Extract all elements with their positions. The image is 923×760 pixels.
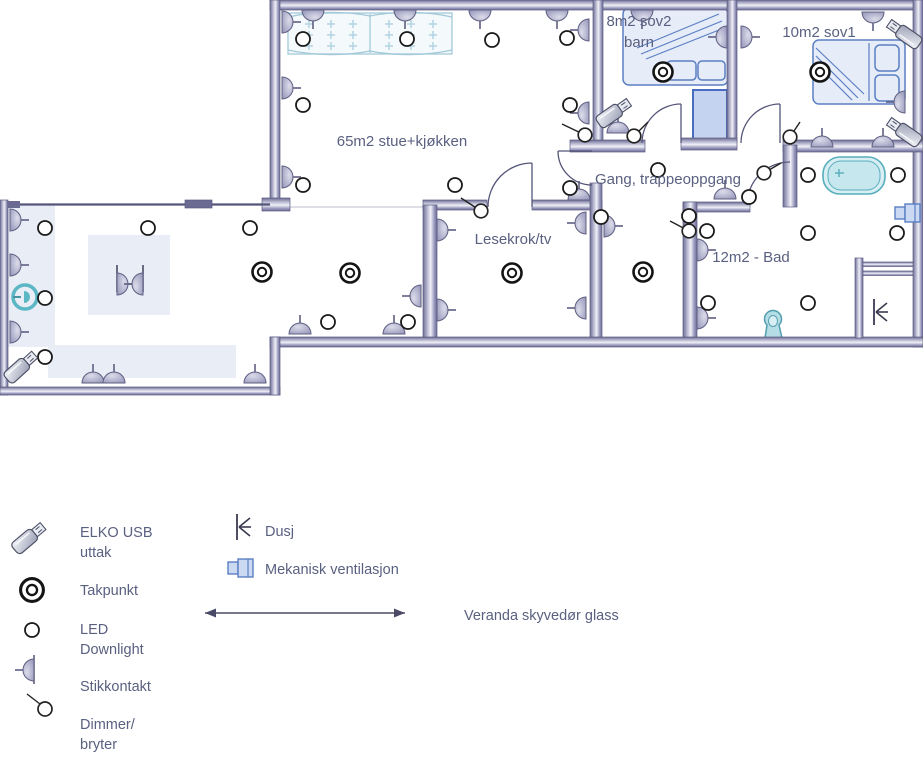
room-label-sov2-line1: 8m2 sov2 <box>606 13 671 30</box>
wall <box>423 205 437 337</box>
led-downlight-symbol <box>742 190 756 204</box>
room-label-gang: Gang, trappeoppgang <box>595 171 741 188</box>
legend-label: Veranda skyvedør glass <box>464 608 619 624</box>
dimmer-symbol <box>627 129 641 143</box>
veranda-line-arrow <box>205 609 216 618</box>
elko-usb-icon <box>10 521 47 556</box>
wall <box>270 0 280 207</box>
takpunkt-symbol <box>503 264 522 283</box>
led-downlight-symbol <box>38 350 52 364</box>
takpunkt-symbol <box>634 263 653 282</box>
led-downlight-symbol <box>296 32 310 46</box>
wardrobe <box>693 90 727 143</box>
wall <box>727 0 737 143</box>
furniture-layer <box>8 8 905 378</box>
floor-plan-svg: 65m2 stue+kjøkken 8m2 sov2 barn 10m2 sov… <box>0 0 923 760</box>
legend-item-veranda: Veranda skyvedør glass <box>205 608 619 624</box>
legend-item-vent: Mekanisk ventilasjon <box>228 559 399 578</box>
legend: ELKO USB uttak Takpunkt LED Downlight St… <box>10 514 619 753</box>
stikkontakt-icon <box>15 659 34 681</box>
legend-label: Dusj <box>265 524 294 540</box>
legend-item-dusj: Dusj <box>237 514 294 540</box>
dusj-icon <box>237 514 251 540</box>
led-downlight-symbol <box>801 226 815 240</box>
wall <box>270 337 280 395</box>
wall <box>783 145 797 207</box>
wall <box>270 337 923 347</box>
led-downlight-symbol <box>321 315 335 329</box>
legend-label: uttak <box>80 545 112 561</box>
stikkontakt-symbol <box>437 299 456 321</box>
wall <box>681 138 737 150</box>
room-label-sov2-line2: barn <box>624 34 654 51</box>
ventilasjon-icon <box>228 559 253 577</box>
led-downlight-symbol <box>563 98 577 112</box>
dusj-symbol <box>874 299 888 325</box>
room-label-stue: 65m2 stue+kjøkken <box>337 133 467 150</box>
stikkontakt-symbol <box>469 10 491 29</box>
legend-item-usb: ELKO USB uttak <box>10 521 152 561</box>
door-sov2 <box>642 104 681 143</box>
dimmer-symbol <box>757 166 771 180</box>
led-downlight-symbol <box>38 291 52 305</box>
toilet <box>765 310 782 338</box>
wall <box>590 183 602 337</box>
led-downlight-symbol <box>485 33 499 47</box>
legend-item-takpunkt: Takpunkt <box>21 579 138 602</box>
ventilasjon-symbol <box>895 204 920 222</box>
veranda-line-arrow <box>394 609 405 618</box>
stikkontakt-symbol <box>437 219 456 241</box>
wall <box>0 387 280 395</box>
wall <box>913 0 923 347</box>
dusj-layer <box>874 299 888 325</box>
led-downlight-symbol <box>801 296 815 310</box>
legend-item-stikkontakt: Stikkontakt <box>15 655 151 695</box>
door-sov1 <box>741 104 780 143</box>
shower-screen <box>863 262 913 267</box>
door-stue-gang <box>558 151 592 185</box>
kitchen-island <box>88 235 170 315</box>
legend-label: Downlight <box>80 642 144 658</box>
dimmer-symbol <box>682 224 696 238</box>
led-downlight-symbol <box>682 209 696 223</box>
led-downlight-symbol <box>890 226 904 240</box>
stikkontakt-symbol <box>567 212 586 234</box>
stikkontakt-symbol <box>567 297 586 319</box>
led-downlight-icon <box>25 623 39 637</box>
stikkontakt-symbol <box>546 10 568 29</box>
led-downlight-symbol <box>594 210 608 224</box>
dimmer-symbol <box>783 130 797 144</box>
led-downlight-symbol <box>296 98 310 112</box>
led-downlight-symbol <box>448 178 462 192</box>
led-downlight-symbol <box>141 221 155 235</box>
takpunkt-icon <box>21 579 44 602</box>
takpunkt-symbol <box>341 264 360 283</box>
legend-label: Mekanisk ventilasjon <box>265 562 399 578</box>
led-downlight-symbol <box>891 168 905 182</box>
led-downlight-symbol <box>401 315 415 329</box>
room-label-sov1: 10m2 sov1 <box>782 24 855 41</box>
led-downlight-symbol <box>560 31 574 45</box>
legend-label: Stikkontakt <box>80 679 151 695</box>
dimmer-symbol <box>474 204 488 218</box>
stikkontakt-symbol <box>872 128 894 147</box>
bathtub <box>823 157 885 194</box>
legend-item-led: LED Downlight <box>25 622 144 658</box>
wall <box>0 200 8 395</box>
shower-wall <box>855 258 863 338</box>
stikkontakt-symbol <box>862 12 884 31</box>
stikkontakt-symbol <box>741 26 760 48</box>
room-label-lesekrok: Lesekrok/tv <box>475 231 552 248</box>
dimmer-symbol <box>578 128 592 142</box>
led-downlight-symbol <box>38 221 52 235</box>
wing-bench-strip <box>48 345 236 378</box>
legend-label: Dimmer/ <box>80 717 136 733</box>
led-downlight-symbol <box>801 168 815 182</box>
led-downlight-symbol <box>400 32 414 46</box>
door-lesekrok <box>488 163 532 207</box>
takpunkt-symbol <box>253 263 272 282</box>
takpunkt-symbol <box>654 63 673 82</box>
stikkontakt-symbol <box>282 77 301 99</box>
stikkontakt-symbol <box>244 364 266 383</box>
stikkontakt-symbol <box>811 128 833 147</box>
floor-plan-page: 65m2 stue+kjøkken 8m2 sov2 barn 10m2 sov… <box>0 0 923 760</box>
legend-label: ELKO USB <box>80 525 153 541</box>
stikkontakt-symbol <box>289 315 311 334</box>
takpunkt-symbol <box>811 63 830 82</box>
led-downlight-symbol <box>563 181 577 195</box>
legend-item-dimmer: Dimmer/ bryter <box>27 694 136 753</box>
led-downlight-symbol <box>700 224 714 238</box>
ventilation-layer <box>895 204 920 222</box>
wall <box>783 140 923 152</box>
shower-screen <box>863 271 913 276</box>
led-downlight-symbol <box>296 178 310 192</box>
led-downlight-symbol <box>243 221 257 235</box>
stikkontakt-symbol <box>402 285 421 307</box>
led-downlight-symbol <box>701 296 715 310</box>
legend-label: LED <box>80 622 108 638</box>
legend-label: Takpunkt <box>80 583 138 599</box>
dimmer-icon <box>38 702 52 716</box>
legend-label: bryter <box>80 737 117 753</box>
room-label-bad: 12m2 - Bad <box>712 249 790 266</box>
